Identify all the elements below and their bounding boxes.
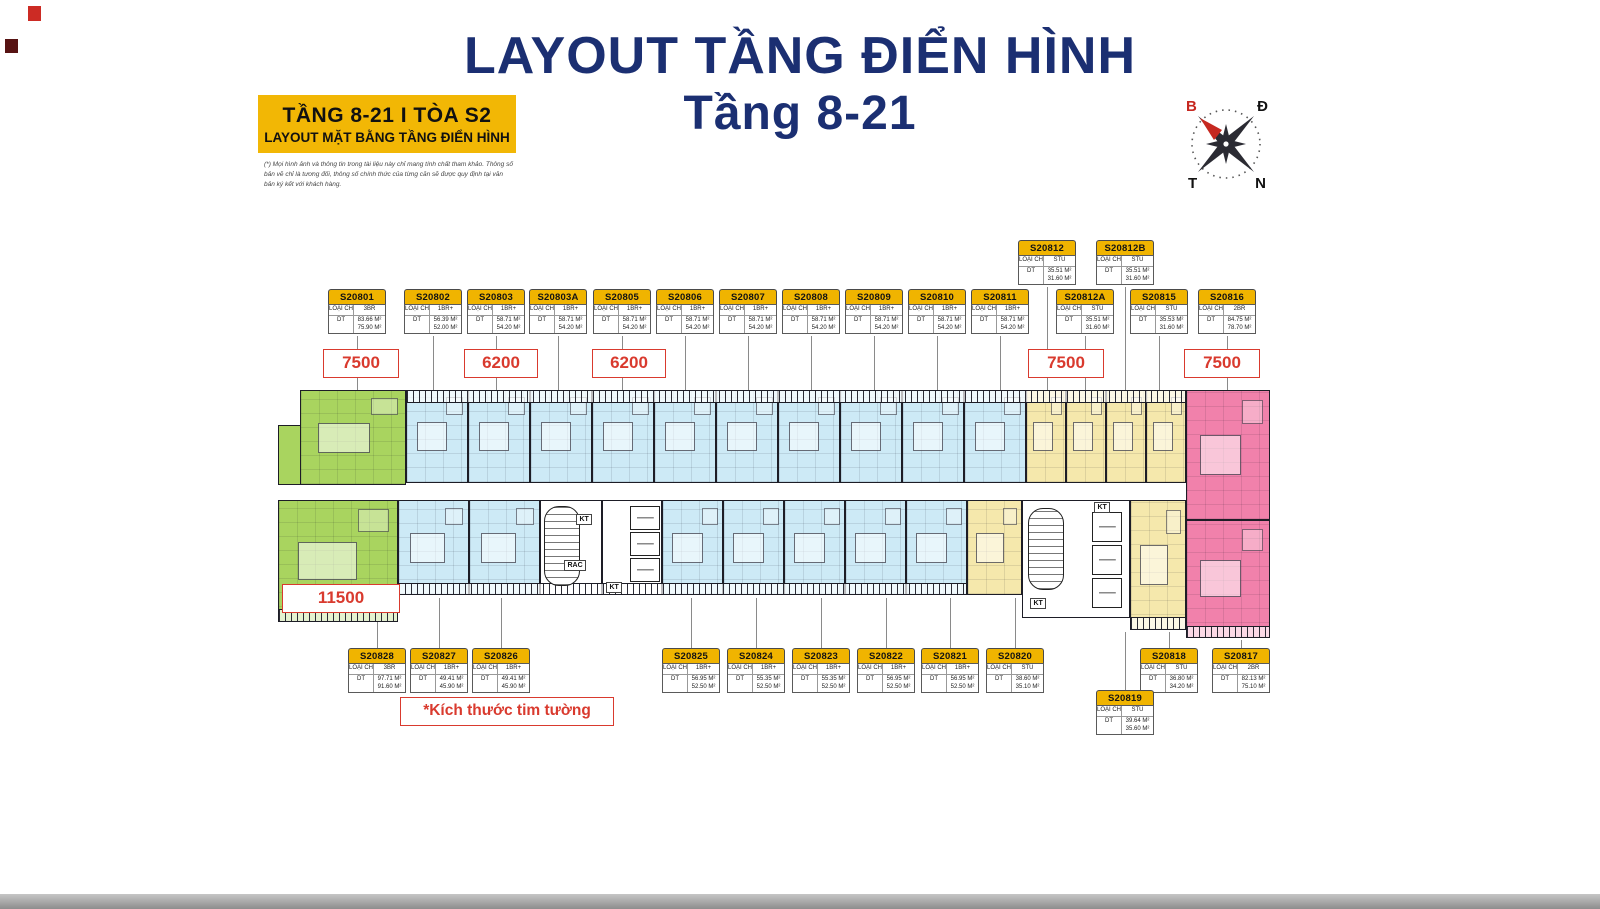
unit-info-table: LOẠI CH 2BR DT 82.13 M²75.10 M² [1212, 663, 1270, 693]
bottom-gray-bar [0, 894, 1600, 909]
unit-area-label: DT [728, 675, 753, 693]
unit-id: S20807 [719, 289, 777, 304]
unit-info-table: LOẠI CH STU DT 36.80 M²34.20 M² [1140, 663, 1198, 693]
unit-card: S20825 LOẠI CH 1BR+ DT 56.95 M²52.50 M² [662, 648, 720, 693]
elevator-cell [1092, 578, 1122, 608]
unit-type-value: 1BR+ [871, 305, 902, 315]
unit-type-value: 1BR+ [947, 664, 978, 674]
leader-line [1169, 632, 1170, 648]
unit-type-value: 1BR+ [818, 664, 849, 674]
leader-line [874, 336, 875, 390]
unit-area-label: DT [349, 675, 374, 693]
unit-card: S20801 LOẠI CH 3BR DT 83.66 M²75.90 M² [328, 289, 386, 334]
unit-area-label: DT [987, 675, 1012, 693]
balcony-hatch [1130, 617, 1186, 630]
unit-card: S20802 LOẠI CH 1BR+ DT 56.39 M²52.00 M² [404, 289, 462, 334]
unit-type-label: LOẠI CH [922, 664, 947, 674]
unit-area-values: 58.71 M²54.20 M² [934, 316, 965, 334]
unit-id: S20828 [348, 648, 406, 663]
unit-card: S20809 LOẠI CH 1BR+ DT 58.71 M²54.20 M² [845, 289, 903, 334]
unit-info-table: LOẠI CH 1BR+ DT 56.95 M²52.50 M² [921, 663, 979, 693]
unit-type-value: 3BR [374, 664, 405, 674]
disclaimer-text: (*) Mọi hình ảnh và thông tin trong tài … [264, 160, 514, 189]
unit-area-label: DT [909, 316, 934, 334]
leader-line [811, 336, 812, 390]
unit-id: S20821 [921, 648, 979, 663]
unit-card: S20812B LOẠI CH STU DT 35.51 M²31.60 M² [1096, 240, 1154, 285]
leader-line [558, 336, 559, 390]
unit-card: S20803A LOẠI CH 1BR+ DT 58.71 M²54.20 M² [529, 289, 587, 334]
elevator-cell [630, 558, 660, 582]
unit-type-value: 1BR+ [745, 305, 776, 315]
plan-block-blue [469, 500, 540, 595]
unit-type-value: STU [1166, 664, 1197, 674]
unit-card: S20818 LOẠI CH STU DT 36.80 M²34.20 M² [1140, 648, 1198, 693]
unit-type-value: 1BR+ [808, 305, 839, 315]
unit-area-values: 97.71 M²91.60 M² [374, 675, 405, 693]
dimension-box: 6200 [464, 349, 538, 378]
unit-id: S20817 [1212, 648, 1270, 663]
unit-type-value: 1BR+ [688, 664, 719, 674]
unit-info-table: LOẠI CH 1BR+ DT 56.39 M²52.00 M² [404, 304, 462, 334]
badge-floor-tower: TẦNG 8-21 I TÒA S2 [258, 104, 516, 128]
unit-type-label: LOẠI CH [987, 664, 1012, 674]
unit-id: S20819 [1096, 690, 1154, 705]
unit-type-label: LOẠI CH [663, 664, 688, 674]
unit-area-values: 58.71 M²54.20 M² [808, 316, 839, 334]
unit-id: S20815 [1130, 289, 1188, 304]
leader-line [439, 598, 440, 648]
corner-maroon-mark [5, 39, 18, 53]
leader-line [886, 598, 887, 648]
unit-area-label: DT [1097, 717, 1122, 735]
unit-area-values: 58.71 M²54.20 M² [555, 316, 586, 334]
unit-info-table: LOẠI CH STU DT 39.64 M²35.60 M² [1096, 705, 1154, 735]
dimension-box: 6200 [592, 349, 666, 378]
unit-card: S20822 LOẠI CH 1BR+ DT 56.95 M²52.50 M² [857, 648, 915, 693]
compass-north-label: B [1186, 98, 1197, 115]
plan-block-blue [662, 500, 723, 595]
unit-area-label: DT [657, 316, 682, 334]
balcony-hatch [398, 583, 967, 595]
unit-type-value: STU [1122, 256, 1153, 266]
leader-line [748, 336, 749, 390]
dimension-box: 7500 [323, 349, 399, 378]
unit-info-table: LOẠI CH 1BR+ DT 58.71 M²54.20 M² [782, 304, 840, 334]
unit-area-label: DT [1019, 267, 1044, 285]
unit-type-label: LOẠI CH [1057, 305, 1082, 315]
unit-area-values: 39.64 M²35.60 M² [1122, 717, 1153, 735]
unit-info-table: LOẠI CH 1BR+ DT 55.35 M²52.50 M² [727, 663, 785, 693]
unit-id: S20809 [845, 289, 903, 304]
unit-area-label: DT [530, 316, 555, 334]
corner-red-mark [28, 6, 41, 21]
unit-area-label: DT [405, 316, 430, 334]
unit-type-label: LOẠI CH [720, 305, 745, 315]
unit-card: S20803 LOẠI CH 1BR+ DT 58.71 M²54.20 M² [467, 289, 525, 334]
unit-type-label: LOẠI CH [1213, 664, 1238, 674]
unit-type-value: 1BR+ [619, 305, 650, 315]
unit-type-label: LOẠI CH [657, 305, 682, 315]
elevator-cell [630, 532, 660, 556]
unit-area-values: 56.95 M²52.50 M² [883, 675, 914, 693]
unit-type-label: LOẠI CH [530, 305, 555, 315]
leader-line [1000, 336, 1001, 390]
unit-id: S20812A [1056, 289, 1114, 304]
leader-line [950, 598, 951, 648]
unit-info-table: LOẠI CH 1BR+ DT 58.71 M²54.20 M² [467, 304, 525, 334]
plan-block-blue [716, 390, 778, 483]
unit-area-label: DT [473, 675, 498, 693]
plan-block-blue [778, 390, 840, 483]
unit-type-value: 1BR+ [430, 305, 461, 315]
plan-block-blue [964, 390, 1026, 483]
unit-info-table: LOẠI CH 3BR DT 83.66 M²75.90 M² [328, 304, 386, 334]
unit-id: S20822 [857, 648, 915, 663]
unit-area-label: DT [468, 316, 493, 334]
unit-area-values: 58.71 M²54.20 M² [619, 316, 650, 334]
unit-id: S20812 [1018, 240, 1076, 255]
unit-type-value: 1BR+ [753, 664, 784, 674]
unit-type-label: LOẠI CH [728, 664, 753, 674]
unit-card: S20811 LOẠI CH 1BR+ DT 58.71 M²54.20 M² [971, 289, 1029, 334]
plan-block-yellow [1146, 390, 1186, 483]
unit-id: S20827 [410, 648, 468, 663]
dimension-box: 7500 [1028, 349, 1104, 378]
unit-type-value: 1BR+ [682, 305, 713, 315]
leader-line [685, 336, 686, 390]
leader-line [1159, 336, 1160, 390]
tower-badge: TẦNG 8-21 I TÒA S2 LAYOUT MẶT BẰNG TẦNG … [258, 95, 516, 153]
unit-card: S20816 LOẠI CH 2BR DT 84.75 M²78.70 M² [1198, 289, 1256, 334]
plan-block-blue [902, 390, 964, 483]
elevator-cell [630, 506, 660, 530]
leader-line [691, 598, 692, 648]
unit-type-value: 1BR+ [436, 664, 467, 674]
unit-type-label: LOẠI CH [594, 305, 619, 315]
unit-type-label: LOẠI CH [329, 305, 354, 315]
leader-line [1125, 287, 1126, 390]
unit-id: S20816 [1198, 289, 1256, 304]
unit-type-value: 1BR+ [883, 664, 914, 674]
unit-type-label: LOẠI CH [793, 664, 818, 674]
unit-info-table: LOẠI CH 1BR+ DT 58.71 M²54.20 M² [529, 304, 587, 334]
unit-type-value: 1BR+ [997, 305, 1028, 315]
unit-type-label: LOẠI CH [473, 664, 498, 674]
unit-card: S20820 LOẠI CH STU DT 38.60 M²35.10 M² [986, 648, 1044, 693]
unit-type-label: LOẠI CH [1019, 256, 1044, 266]
plan-block-yellow [967, 500, 1022, 595]
unit-area-values: 55.35 M²52.50 M² [818, 675, 849, 693]
unit-type-label: LOẠI CH [405, 305, 430, 315]
plan-block-green [278, 425, 301, 485]
leader-line [433, 336, 434, 390]
unit-type-label: LOẠI CH [846, 305, 871, 315]
unit-id: S20824 [727, 648, 785, 663]
plan-block-blue [592, 390, 654, 483]
plan-block-blue [654, 390, 716, 483]
unit-type-value: 2BR [1224, 305, 1255, 315]
elevator-cell [1092, 545, 1122, 575]
unit-area-values: 36.80 M²34.20 M² [1166, 675, 1197, 693]
unit-area-values: 55.35 M²52.50 M² [753, 675, 784, 693]
unit-card: S20824 LOẠI CH 1BR+ DT 55.35 M²52.50 M² [727, 648, 785, 693]
compass-west-label: T [1188, 175, 1197, 192]
unit-area-values: 58.71 M²54.20 M² [682, 316, 713, 334]
plan-block-blue [398, 500, 469, 595]
unit-area-values: 82.13 M²75.10 M² [1238, 675, 1269, 693]
unit-area-values: 38.60 M²35.10 M² [1012, 675, 1043, 693]
unit-id: S20808 [782, 289, 840, 304]
unit-card: S20812A LOẠI CH STU DT 35.51 M²31.60 M² [1056, 289, 1114, 334]
unit-id: S20805 [593, 289, 651, 304]
plan-block-blue [784, 500, 845, 595]
unit-info-table: LOẠI CH 1BR+ DT 58.71 M²54.20 M² [971, 304, 1029, 334]
unit-area-label: DT [1097, 267, 1122, 285]
wall-dimension-note: *Kích thước tim tường [400, 697, 614, 726]
unit-type-value: STU [1156, 305, 1187, 315]
unit-area-label: DT [1199, 316, 1224, 334]
unit-card: S20823 LOẠI CH 1BR+ DT 55.35 M²52.50 M² [792, 648, 850, 693]
unit-type-label: LOẠI CH [1199, 305, 1224, 315]
badge-layout-label: LAYOUT MẶT BẰNG TẦNG ĐIỂN HÌNH [258, 130, 516, 145]
unit-id: S20811 [971, 289, 1029, 304]
unit-area-label: DT [720, 316, 745, 334]
unit-area-label: DT [922, 675, 947, 693]
compass-rose: B Đ T N [1178, 96, 1274, 192]
dimension-box: 11500 [282, 584, 400, 613]
page-title: LAYOUT TẦNG ĐIỂN HÌNH [464, 26, 1136, 86]
unit-area-values: 56.95 M²52.50 M² [688, 675, 719, 693]
unit-area-label: DT [594, 316, 619, 334]
unit-card: S20810 LOẠI CH 1BR+ DT 58.71 M²54.20 M² [908, 289, 966, 334]
unit-info-table: LOẠI CH 1BR+ DT 55.35 M²52.50 M² [792, 663, 850, 693]
unit-id: S20810 [908, 289, 966, 304]
core-label: KT [1030, 598, 1046, 609]
leader-line [756, 598, 757, 648]
unit-info-table: LOẠI CH 2BR DT 84.75 M²78.70 M² [1198, 304, 1256, 334]
leader-line [501, 598, 502, 648]
unit-info-table: LOẠI CH 1BR+ DT 49.41 M²45.90 M² [472, 663, 530, 693]
unit-area-label: DT [846, 316, 871, 334]
plan-block-pink [1186, 520, 1270, 638]
unit-area-values: 49.41 M²45.90 M² [436, 675, 467, 693]
unit-id: S20812B [1096, 240, 1154, 255]
plan-block-yellow [1026, 390, 1066, 483]
core-label: KT [1094, 502, 1110, 513]
staircase [544, 506, 580, 586]
plan-block-pink [1186, 390, 1270, 520]
unit-type-label: LOẠI CH [1097, 256, 1122, 266]
unit-type-value: STU [1122, 706, 1153, 716]
unit-card: S20828 LOẠI CH 3BR DT 97.71 M²91.60 M² [348, 648, 406, 693]
unit-card: S20807 LOẠI CH 1BR+ DT 58.71 M²54.20 M² [719, 289, 777, 334]
unit-area-label: DT [411, 675, 436, 693]
plan-block-blue [906, 500, 967, 595]
leader-line [1241, 640, 1242, 648]
unit-area-values: 84.75 M²78.70 M² [1224, 316, 1255, 334]
unit-info-table: LOẠI CH 1BR+ DT 58.71 M²54.20 M² [656, 304, 714, 334]
dimension-box: 7500 [1184, 349, 1260, 378]
unit-id: S20802 [404, 289, 462, 304]
unit-type-label: LOẠI CH [1141, 664, 1166, 674]
unit-type-label: LOẠI CH [1097, 706, 1122, 716]
unit-area-label: DT [793, 675, 818, 693]
unit-card: S20821 LOẠI CH 1BR+ DT 56.95 M²52.50 M² [921, 648, 979, 693]
unit-type-value: 1BR+ [498, 664, 529, 674]
plan-block-blue [723, 500, 784, 595]
elevator-cell [1092, 512, 1122, 542]
unit-area-values: 56.95 M²52.50 M² [947, 675, 978, 693]
unit-id: S20823 [792, 648, 850, 663]
unit-id: S20826 [472, 648, 530, 663]
unit-area-values: 83.66 M²75.90 M² [354, 316, 385, 334]
compass-south-label: N [1255, 175, 1266, 192]
unit-area-label: DT [329, 316, 354, 334]
unit-area-values: 35.51 M²31.60 M² [1122, 267, 1153, 285]
unit-info-table: LOẠI CH 1BR+ DT 58.71 M²54.20 M² [593, 304, 651, 334]
unit-type-value: 3BR [354, 305, 385, 315]
unit-area-label: DT [783, 316, 808, 334]
unit-type-label: LOẠI CH [909, 305, 934, 315]
plan-block-blue [840, 390, 902, 483]
unit-id: S20803 [467, 289, 525, 304]
plan-block-blue [406, 390, 468, 483]
unit-id: S20820 [986, 648, 1044, 663]
plan-block-yellow [1130, 500, 1186, 630]
unit-info-table: LOẠI CH STU DT 35.51 M²31.60 M² [1056, 304, 1114, 334]
balcony-hatch [1186, 626, 1270, 638]
unit-info-table: LOẠI CH 1BR+ DT 56.95 M²52.50 M² [857, 663, 915, 693]
unit-area-label: DT [858, 675, 883, 693]
unit-info-table: LOẠI CH 1BR+ DT 58.71 M²54.20 M² [908, 304, 966, 334]
unit-info-table: LOẠI CH 1BR+ DT 58.71 M²54.20 M² [719, 304, 777, 334]
staircase [1028, 508, 1064, 590]
unit-type-value: 2BR [1238, 664, 1269, 674]
core-label: KT [576, 514, 592, 525]
plan-block-yellow [1106, 390, 1146, 483]
core-label: KT [606, 582, 622, 593]
unit-area-values: 35.51 M²31.60 M² [1044, 267, 1075, 285]
unit-info-table: LOẠI CH STU DT 35.51 M²31.60 M² [1018, 255, 1076, 285]
unit-info-table: LOẠI CH 1BR+ DT 56.95 M²52.50 M² [662, 663, 720, 693]
unit-type-value: 1BR+ [493, 305, 524, 315]
compass-east-label: Đ [1257, 98, 1268, 115]
unit-area-values: 35.53 M²31.60 M² [1156, 316, 1187, 334]
unit-id: S20806 [656, 289, 714, 304]
unit-type-label: LOẠI CH [972, 305, 997, 315]
unit-card: S20812 LOẠI CH STU DT 35.51 M²31.60 M² [1018, 240, 1076, 285]
unit-type-value: STU [1044, 256, 1075, 266]
leader-line [821, 598, 822, 648]
unit-type-value: 1BR+ [934, 305, 965, 315]
unit-area-label: DT [1213, 675, 1238, 693]
unit-area-values: 58.71 M²54.20 M² [871, 316, 902, 334]
unit-area-values: 58.71 M²54.20 M² [997, 316, 1028, 334]
unit-card: S20817 LOẠI CH 2BR DT 82.13 M²75.10 M² [1212, 648, 1270, 693]
unit-area-values: 58.71 M²54.20 M² [745, 316, 776, 334]
unit-card: S20805 LOẠI CH 1BR+ DT 58.71 M²54.20 M² [593, 289, 651, 334]
unit-info-table: LOẠI CH STU DT 35.51 M²31.60 M² [1096, 255, 1154, 285]
unit-type-label: LOẠI CH [858, 664, 883, 674]
unit-info-table: LOẠI CH 1BR+ DT 58.71 M²54.20 M² [845, 304, 903, 334]
unit-info-table: LOẠI CH STU DT 35.53 M²31.60 M² [1130, 304, 1188, 334]
unit-type-label: LOẠI CH [468, 305, 493, 315]
leader-line [937, 336, 938, 390]
unit-info-table: LOẠI CH 3BR DT 97.71 M²91.60 M² [348, 663, 406, 693]
core-label: RAC [564, 560, 586, 571]
unit-type-label: LOẠI CH [411, 664, 436, 674]
unit-card: S20806 LOẠI CH 1BR+ DT 58.71 M²54.20 M² [656, 289, 714, 334]
page-subtitle: Tầng 8-21 [683, 86, 916, 141]
leader-line [1125, 632, 1126, 690]
unit-area-values: 49.41 M²45.90 M² [498, 675, 529, 693]
unit-id: S20803A [529, 289, 587, 304]
unit-type-value: 1BR+ [555, 305, 586, 315]
plan-block-blue [530, 390, 592, 483]
unit-id: S20801 [328, 289, 386, 304]
unit-area-label: DT [663, 675, 688, 693]
balcony-hatch [406, 390, 1186, 403]
unit-id: S20818 [1140, 648, 1198, 663]
unit-card: S20815 LOẠI CH STU DT 35.53 M²31.60 M² [1130, 289, 1188, 334]
unit-type-label: LOẠI CH [1131, 305, 1156, 315]
unit-info-table: LOẠI CH STU DT 38.60 M²35.10 M² [986, 663, 1044, 693]
plan-block-yellow [1066, 390, 1106, 483]
unit-area-values: 35.51 M²31.60 M² [1082, 316, 1113, 334]
unit-id: S20825 [662, 648, 720, 663]
unit-card: S20827 LOẠI CH 1BR+ DT 49.41 M²45.90 M² [410, 648, 468, 693]
plan-block-blue [845, 500, 906, 595]
unit-type-value: STU [1012, 664, 1043, 674]
unit-type-label: LOẠI CH [783, 305, 808, 315]
unit-area-label: DT [1057, 316, 1082, 334]
unit-area-values: 56.39 M²52.00 M² [430, 316, 461, 334]
unit-area-label: DT [972, 316, 997, 334]
unit-card: S20819 LOẠI CH STU DT 39.64 M²35.60 M² [1096, 690, 1154, 735]
unit-type-value: STU [1082, 305, 1113, 315]
plan-block-green [300, 390, 406, 485]
unit-card: S20826 LOẠI CH 1BR+ DT 49.41 M²45.90 M² [472, 648, 530, 693]
leader-line [1015, 598, 1016, 648]
unit-type-label: LOẠI CH [349, 664, 374, 674]
unit-info-table: LOẠI CH 1BR+ DT 49.41 M²45.90 M² [410, 663, 468, 693]
unit-area-label: DT [1131, 316, 1156, 334]
unit-area-values: 58.71 M²54.20 M² [493, 316, 524, 334]
plan-block-blue [468, 390, 530, 483]
unit-card: S20808 LOẠI CH 1BR+ DT 58.71 M²54.20 M² [782, 289, 840, 334]
